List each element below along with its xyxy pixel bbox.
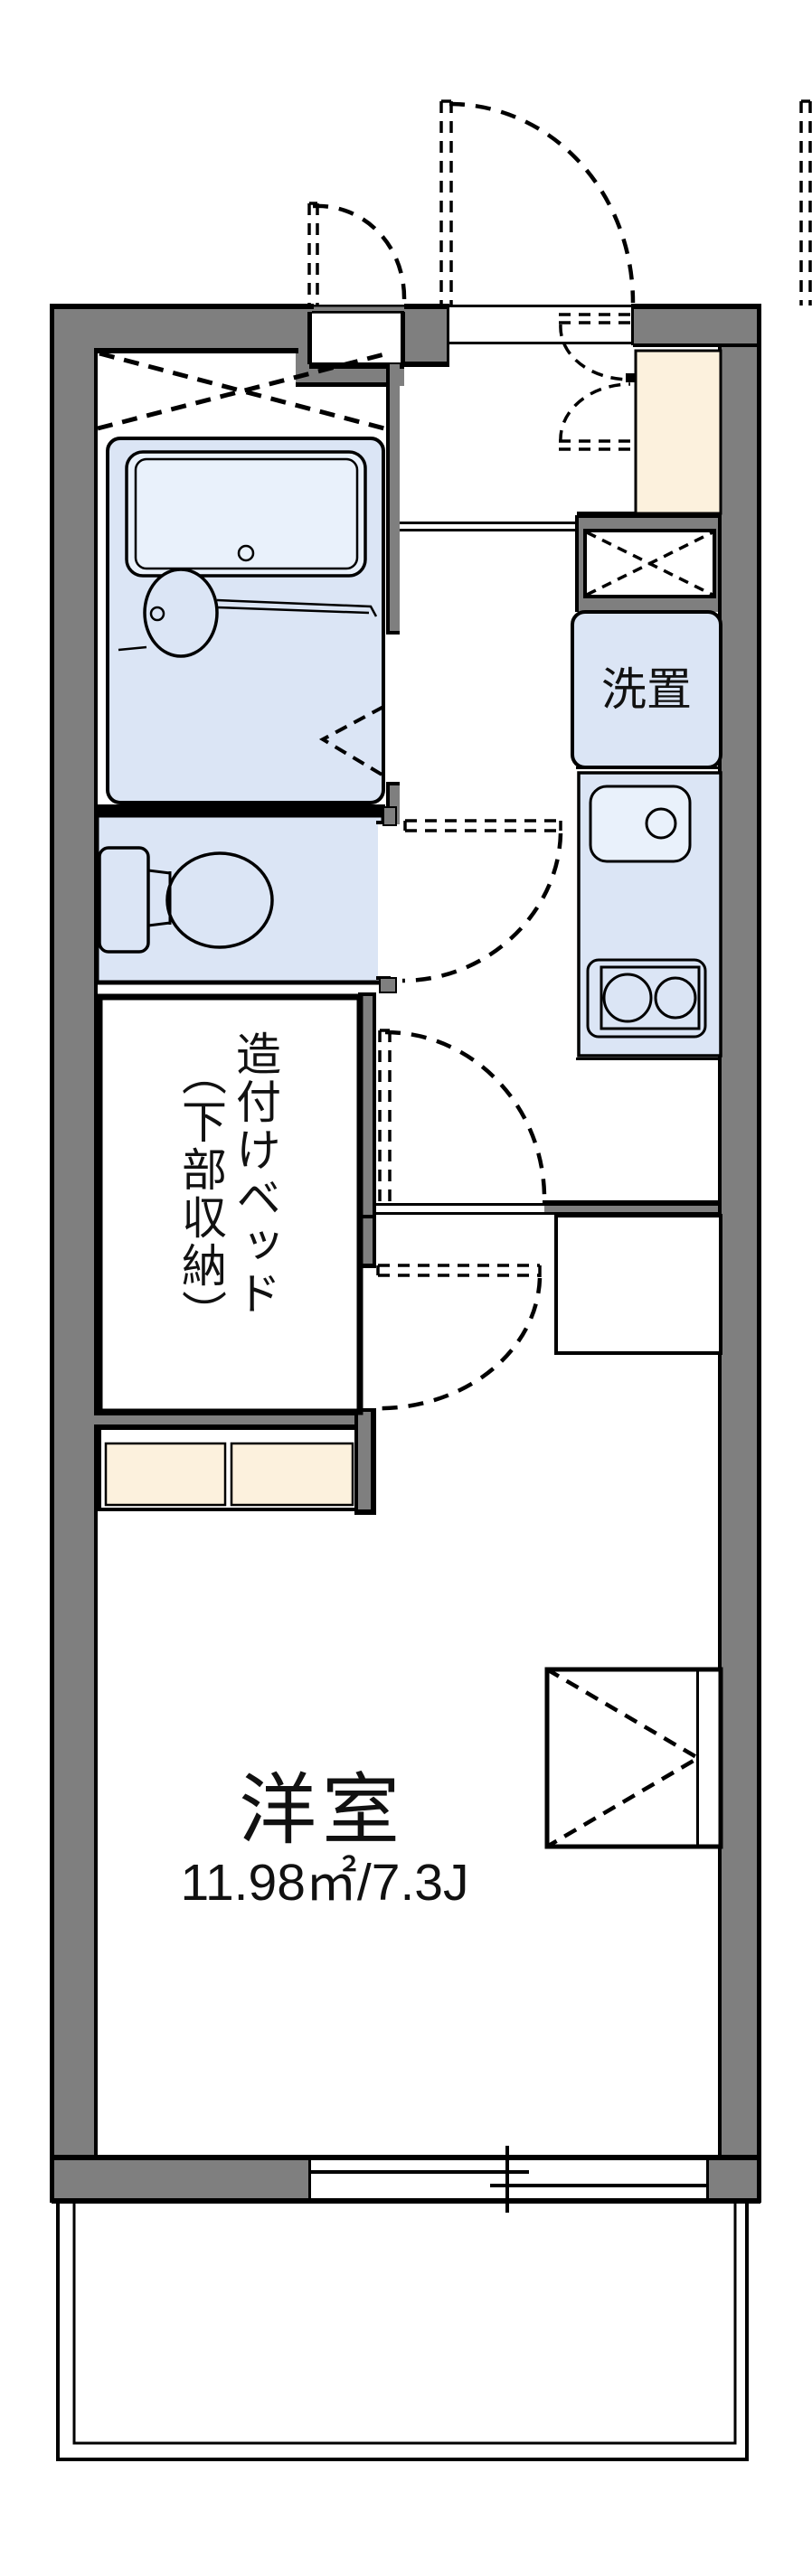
balcony-inner-rail — [74, 2203, 735, 2443]
bed-room: 造付けベッド （下部収納） — [99, 997, 360, 1412]
toilet-tank — [99, 848, 148, 952]
laundry-label: 洗置 — [601, 664, 692, 715]
shoe-cabinet-doors — [559, 315, 633, 449]
shoe-cabinet — [636, 351, 721, 513]
room-area-label: 11.98㎡/7.3J — [181, 1854, 469, 1912]
toilet-door-arc — [402, 833, 561, 981]
meter-door-leaf — [309, 203, 317, 306]
door-jamb-cap — [383, 807, 396, 825]
room-name-label: 洋室 — [239, 1767, 405, 1854]
entry-door-arc — [449, 104, 633, 303]
balcony-outer-rail — [58, 2203, 747, 2459]
floor-plan-page: 洗置 — [0, 0, 812, 2576]
room-door-leaf — [378, 1265, 540, 1281]
bathtub-drain — [239, 546, 253, 560]
room-labels: 洋室 11.98㎡/7.3J — [181, 1767, 469, 1912]
basin-faucet — [151, 607, 164, 620]
kitchen-faucet — [647, 809, 675, 838]
bed-storage-cabinet — [99, 1428, 356, 1509]
stove-burner-right — [656, 978, 695, 1018]
boundary-dashed-line — [801, 101, 810, 306]
entry-door-leaf — [441, 101, 451, 306]
meter-door-arc — [313, 206, 404, 300]
bathtub — [127, 452, 365, 576]
bed-label-line2: （下部収納） — [175, 1050, 226, 1338]
bedroom-door-leaf — [380, 1030, 390, 1202]
bed-label-line1: 造付けベッド — [230, 1030, 280, 1318]
toilet-bowl — [167, 853, 272, 947]
floor-plan-svg: 洗置 — [0, 0, 812, 2576]
toilet-room — [97, 807, 396, 992]
door-meeting-knob — [626, 373, 635, 382]
stove-burner-left — [604, 974, 651, 1021]
kitchen-stove — [588, 960, 705, 1037]
toilet-door-leaf — [405, 821, 561, 831]
kitchen-unit — [576, 766, 721, 1060]
bedroom-door-arc — [385, 1032, 544, 1202]
room-door-arc — [373, 1278, 540, 1408]
door-jamb-cap2 — [380, 978, 396, 992]
pipe-space-box — [585, 531, 714, 597]
meter-box-niche — [312, 314, 401, 362]
toilet-doorway — [378, 824, 391, 978]
bathroom-unit — [108, 438, 383, 803]
laundry-pan: 洗置 — [572, 612, 721, 767]
cabinet-door-right — [231, 1443, 353, 1505]
refrigerator-space — [556, 1216, 721, 1353]
cabinet-door-left — [106, 1443, 225, 1505]
balcony — [58, 2203, 747, 2459]
side-window-box — [547, 1669, 721, 1847]
